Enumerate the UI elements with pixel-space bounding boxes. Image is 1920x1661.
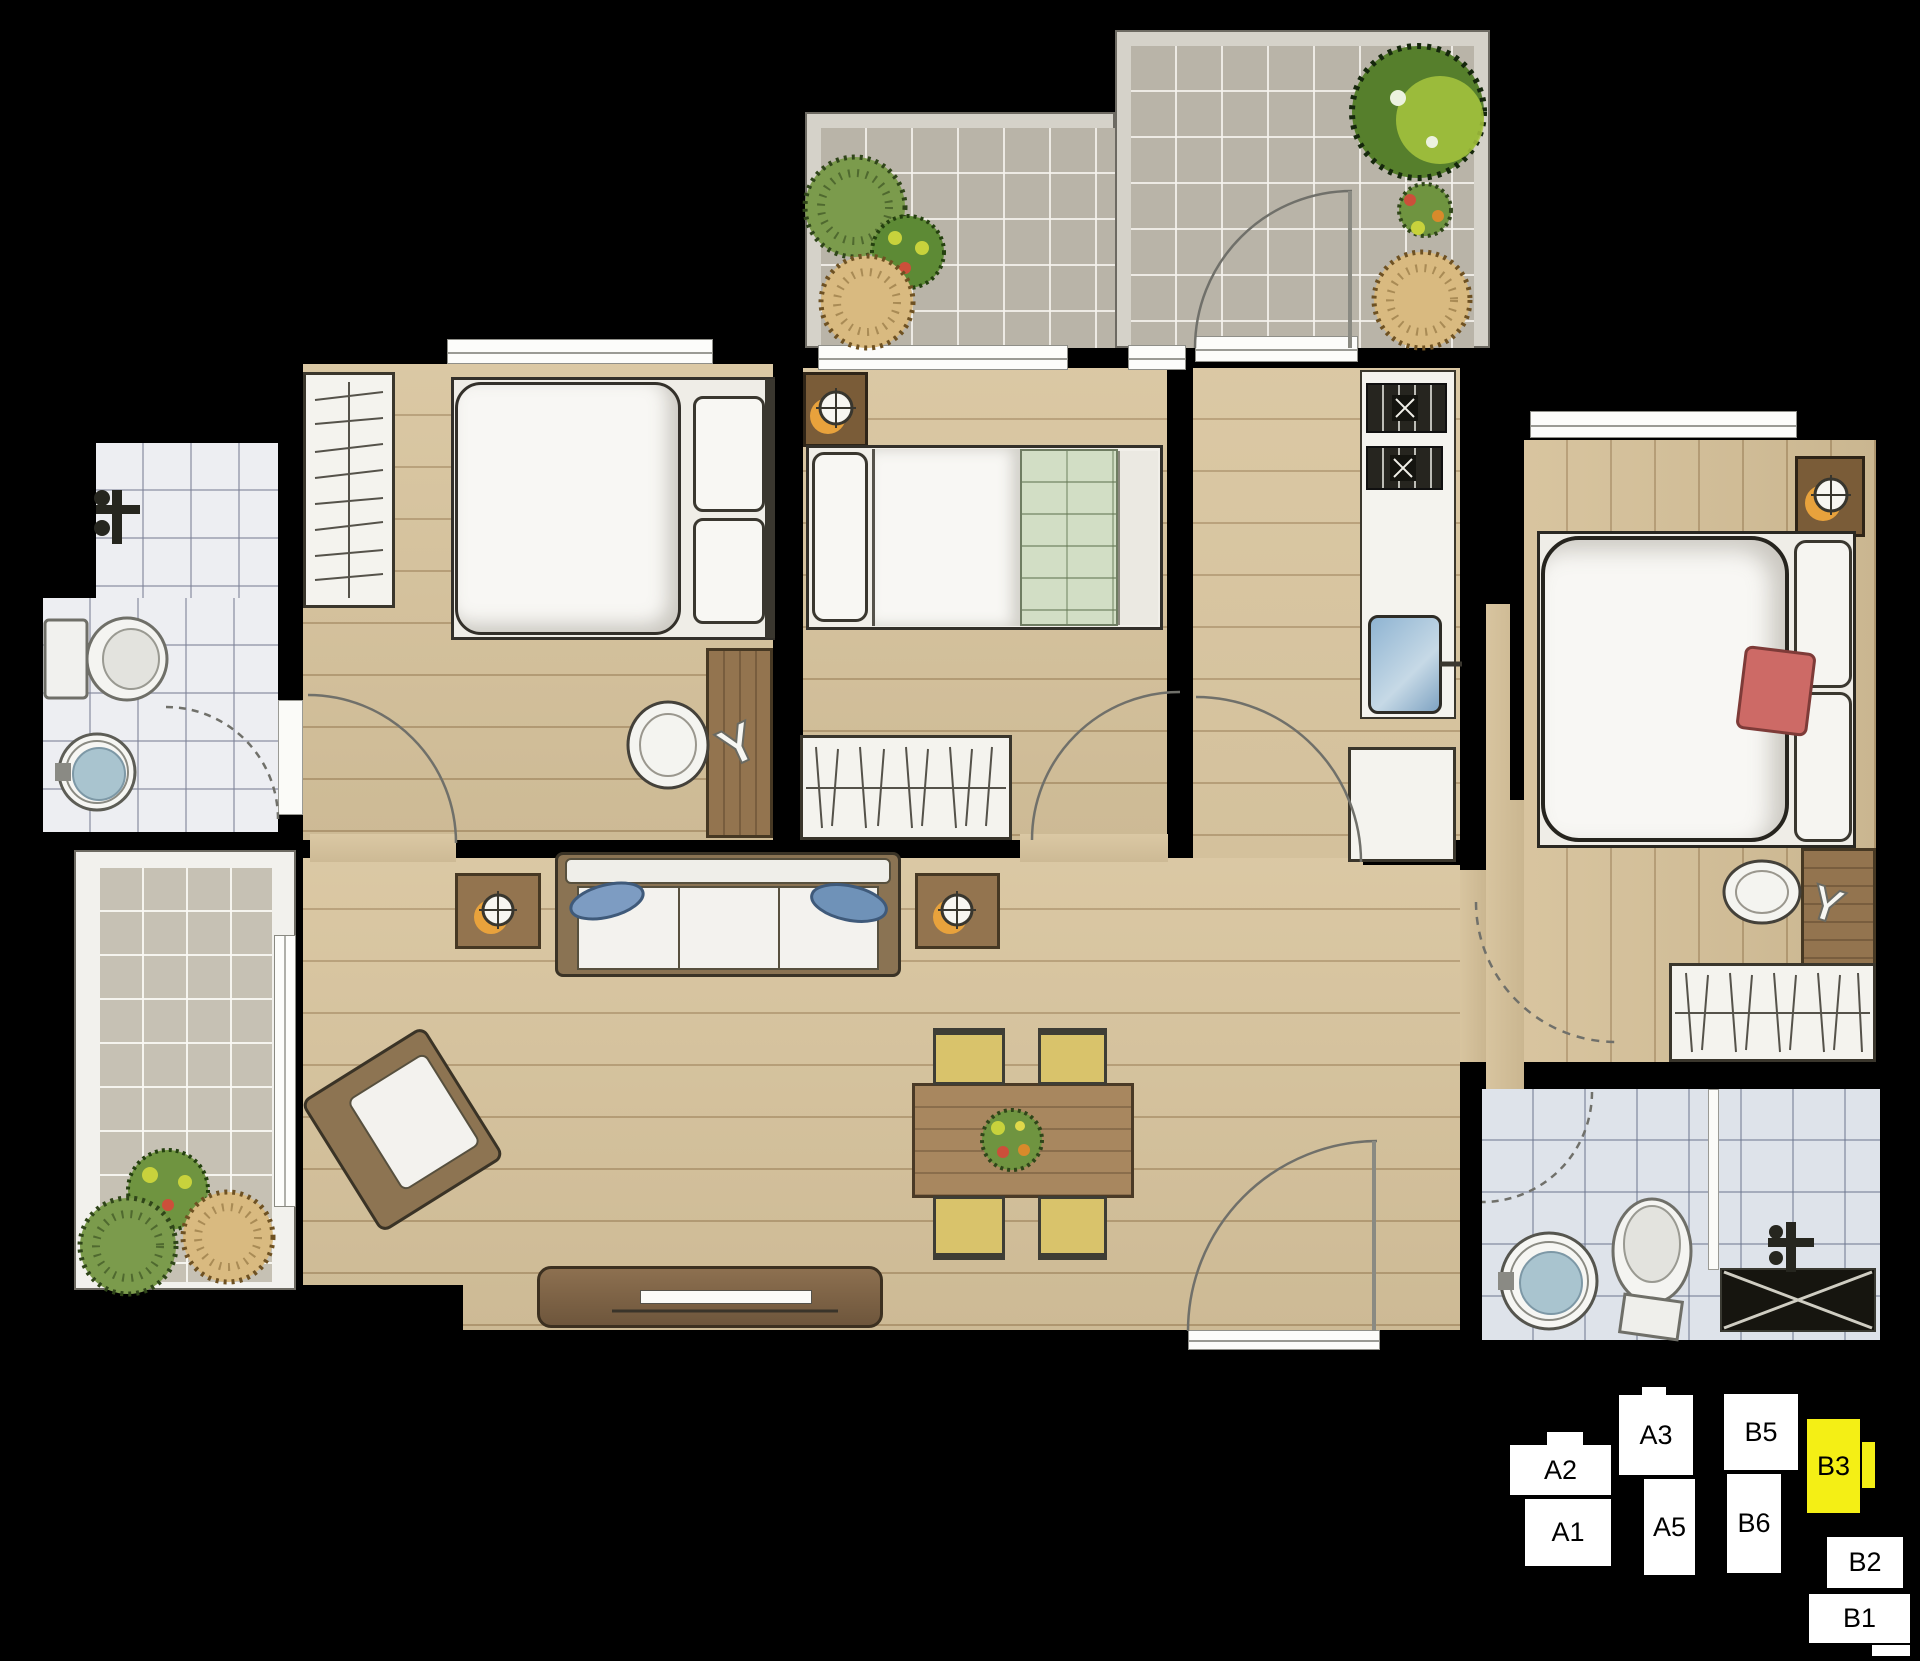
unit-label: A5 — [1653, 1512, 1686, 1543]
bed-1-headboard — [765, 379, 775, 638]
bathroom-1-floor-upper — [96, 443, 278, 603]
unit-label: B2 — [1848, 1547, 1881, 1578]
key-plan-unit-b1-tab[interactable] — [1870, 1645, 1912, 1658]
entry-door-sill — [1188, 1330, 1380, 1350]
wall-living-notch — [303, 1285, 463, 1330]
key-plan-unit-b5[interactable]: B5 — [1722, 1392, 1800, 1472]
shower-partition — [1708, 1089, 1719, 1270]
kitchen-base-cabinet — [1348, 747, 1456, 862]
unit-label: B3 — [1817, 1451, 1850, 1482]
bedroom-1-door-opening — [310, 834, 456, 862]
nightstand-master — [1795, 456, 1865, 537]
key-plan-unit-a5[interactable]: A5 — [1642, 1477, 1697, 1577]
unit-label: B6 — [1737, 1508, 1770, 1539]
wardrobe-bedroom-2 — [800, 735, 1012, 840]
bath-mat — [1720, 1268, 1876, 1332]
tv — [640, 1290, 812, 1304]
dining-chair-tl — [933, 1028, 1005, 1085]
terrace-left-floor — [821, 128, 1115, 348]
sofa-seat-cushions — [577, 886, 879, 970]
side-table-right — [915, 873, 1000, 949]
master-window — [1530, 411, 1797, 438]
key-plan-unit-b3[interactable]: B3 — [1805, 1417, 1862, 1515]
bathroom-1-floor-lower — [43, 598, 278, 832]
bedroom-1-window — [447, 339, 713, 364]
balcony-floor — [100, 868, 272, 1282]
dressing-table-bedroom-1 — [706, 648, 773, 838]
bed-2-green-blanket — [1020, 449, 1118, 626]
side-table-left — [455, 873, 541, 949]
master-red-pillow — [1735, 645, 1817, 737]
kitchen-sink — [1368, 615, 1442, 714]
floor-plan-image: Y Y — [0, 0, 1920, 1661]
key-plan-unit-a3[interactable]: A3 — [1617, 1393, 1695, 1477]
key-plan-unit-a3-tab[interactable] — [1640, 1385, 1668, 1395]
nightstand-bedroom-2 — [803, 372, 868, 447]
bed-1-pillow-top — [693, 396, 765, 512]
dining-chair-tr — [1038, 1028, 1107, 1085]
unit-label: B5 — [1744, 1417, 1777, 1448]
key-plan-unit-a1[interactable]: A1 — [1523, 1497, 1613, 1568]
bed-2-duvet — [872, 449, 1020, 626]
dining-chair-bl — [933, 1196, 1005, 1260]
unit-label: B1 — [1843, 1603, 1876, 1634]
sofa-back-cushion — [565, 858, 891, 884]
bed-1-pillow-bottom — [693, 518, 765, 624]
wardrobe-bedroom-1 — [303, 372, 395, 608]
bed-2-pillow — [812, 452, 868, 622]
bedroom-2-door-opening — [1020, 834, 1168, 862]
bed-2-foot-fold — [1118, 451, 1158, 625]
bathroom-1-door-sill — [278, 700, 303, 815]
terrace-door-sill — [1195, 336, 1358, 362]
dining-table — [912, 1083, 1134, 1198]
dressing-table-master — [1801, 848, 1876, 968]
unit-label: A1 — [1551, 1517, 1584, 1548]
hallway-opening — [1460, 870, 1486, 1062]
key-plan-unit-b2[interactable]: B2 — [1825, 1535, 1905, 1590]
dining-chair-br — [1038, 1196, 1107, 1260]
bedroom-2-window — [818, 345, 1068, 370]
key-plan: A2 A1 A3 A5 B5 B6 B3 B2 B1 — [1490, 1380, 1920, 1661]
balcony-sliding-door — [274, 935, 296, 1207]
key-plan-unit-b1[interactable]: B1 — [1807, 1592, 1912, 1645]
bedroom-2-window-small — [1128, 345, 1186, 370]
stove-burner-2 — [1366, 446, 1443, 490]
key-plan-unit-a2[interactable]: A2 — [1508, 1443, 1613, 1497]
unit-label: A3 — [1639, 1420, 1672, 1451]
stove-burner-1 — [1366, 383, 1447, 433]
unit-label: A2 — [1544, 1455, 1577, 1486]
wall-hallway-master — [1510, 440, 1524, 800]
terrace-right-floor — [1131, 46, 1474, 348]
key-plan-unit-b6[interactable]: B6 — [1725, 1472, 1783, 1575]
bed-1-duvet — [455, 382, 681, 635]
wardrobe-master — [1669, 963, 1876, 1062]
key-plan-unit-a2-tab[interactable] — [1545, 1430, 1585, 1445]
